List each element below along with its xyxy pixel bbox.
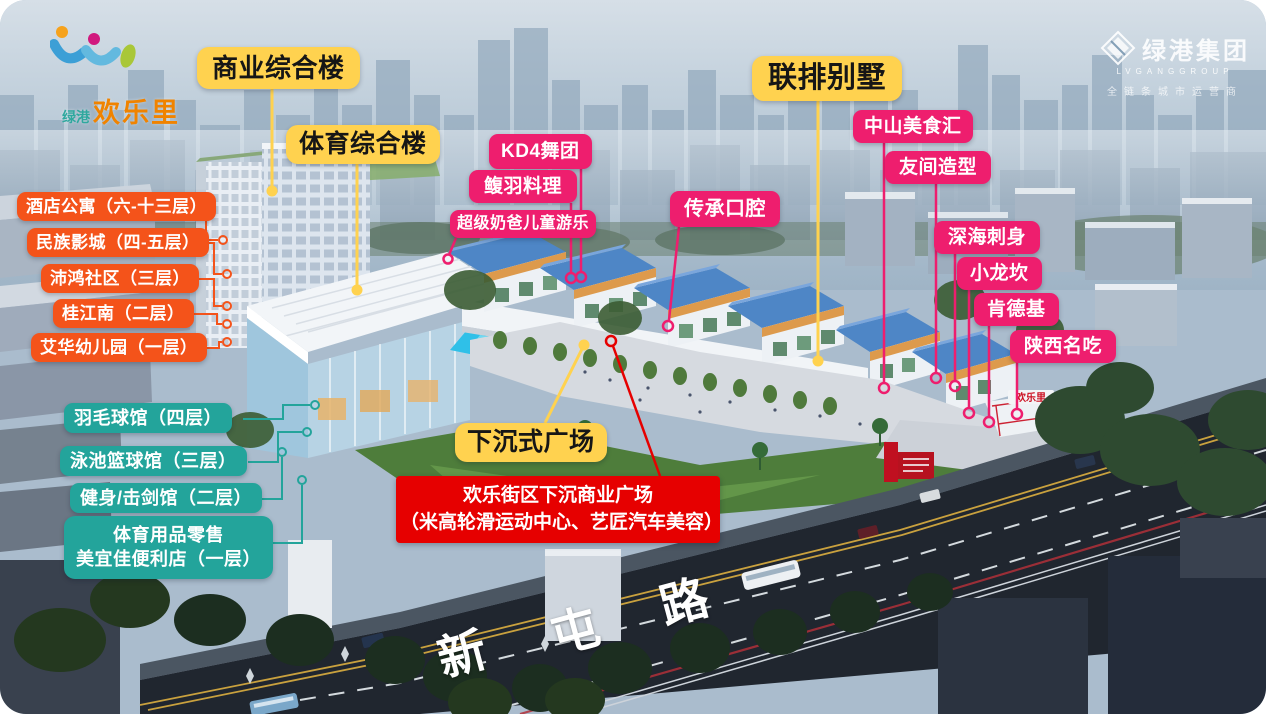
site-logo-icon xyxy=(50,22,160,84)
site-logo-name: 欢乐里 xyxy=(93,91,180,130)
callout-zhongshan-food-court: 中山美食汇 xyxy=(853,110,973,143)
callout-shaanxi-snacks: 陕西名吃 xyxy=(1010,330,1116,363)
callout-gym-fencing-hall: 健身/击剑馆（二层） xyxy=(70,483,262,513)
site-logo: 绿港 欢乐里 xyxy=(50,22,200,130)
callout-kd4-dance: KD4舞团 xyxy=(489,134,592,169)
callout-badminton-hall: 羽毛球馆（四层） xyxy=(64,403,232,433)
callout-hotel-apartment: 酒店公寓（六-十三层） xyxy=(17,192,216,221)
site-logo-prefix: 绿港 xyxy=(62,107,90,130)
sports-retail-line1: 体育用品零售 xyxy=(113,523,224,547)
callout-sunken-plaza: 下沉式广场 xyxy=(455,423,607,462)
callout-youjian-salon: 友间造型 xyxy=(885,151,991,184)
developer-logo: 绿港集团 LVGANGGROUP 全链条城市运营商 xyxy=(1092,30,1258,98)
sunken-note-line1: 欢乐街区下沉商业广场 xyxy=(400,483,716,510)
callout-deep-sea-sashimi: 深海刺身 xyxy=(934,221,1040,254)
callout-townhouses: 联排别墅 xyxy=(752,56,902,101)
developer-name: 绿港集团 xyxy=(1142,31,1250,66)
callout-kfc: 肯德基 xyxy=(974,293,1059,326)
callout-commercial-complex: 商业综合楼 xyxy=(197,47,360,89)
developer-logo-icon xyxy=(1100,30,1136,66)
aerial-rendering: 欢乐里 xyxy=(0,0,1266,714)
entrance-sign: 欢乐里 xyxy=(1015,391,1046,404)
callout-fuyu-cuisine: 鳆羽料理 xyxy=(469,170,577,203)
callout-peihong-community: 沛鸿社区（三层） xyxy=(41,264,199,293)
callout-guijiangnan: 桂江南（二层） xyxy=(53,299,194,328)
sunken-note-line2: （米高轮滑运动中心、艺匠汽车美容） xyxy=(400,510,716,537)
note-sunken-street-detail: 欢乐街区下沉商业广场 （米高轮滑运动中心、艺匠汽车美容） xyxy=(396,476,720,543)
callout-chuancheng-dental: 传承口腔 xyxy=(670,191,780,227)
callout-sports-retail-store: 体育用品零售 美宜佳便利店（一层） xyxy=(64,516,273,579)
callout-pool-basketball-hall: 泳池篮球馆（三层） xyxy=(60,446,247,476)
callout-sports-complex: 体育综合楼 xyxy=(286,125,440,164)
callout-super-dad-kids-play: 超级奶爸儿童游乐 xyxy=(450,210,596,238)
developer-latin-name: LVGANGGROUP xyxy=(1092,67,1258,76)
callout-ethnic-cinema: 民族影城（四-五层） xyxy=(27,228,209,257)
sports-retail-line2: 美宜佳便利店（一层） xyxy=(76,547,261,571)
callout-aihua-kindergarten: 艾华幼儿园（一层） xyxy=(31,333,207,362)
callout-xiaolongkan: 小龙坎 xyxy=(957,257,1042,290)
developer-tagline: 全链条城市运营商 xyxy=(1092,83,1258,98)
